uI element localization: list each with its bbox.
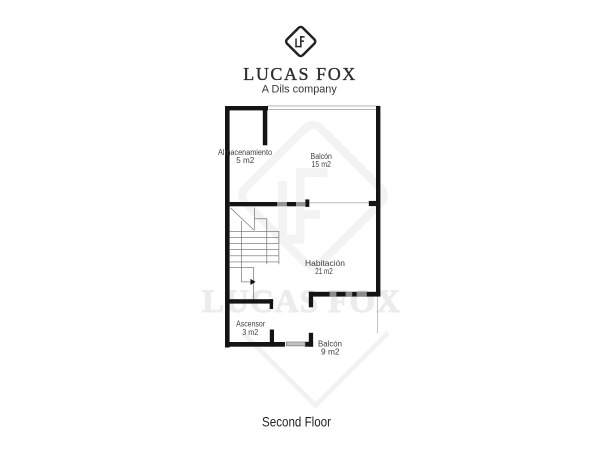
svg-text:Second Floor: Second Floor — [262, 414, 331, 430]
svg-text:21 m2: 21 m2 — [315, 267, 333, 276]
svg-text:A Dils company: A Dils company — [262, 84, 337, 96]
svg-text:9 m2: 9 m2 — [321, 348, 340, 357]
svg-text:LUCAS FOX: LUCAS FOX — [243, 64, 355, 84]
svg-text:5 m2: 5 m2 — [236, 156, 254, 165]
svg-text:15 m2: 15 m2 — [311, 160, 331, 169]
svg-text:3 m2: 3 m2 — [242, 328, 258, 337]
